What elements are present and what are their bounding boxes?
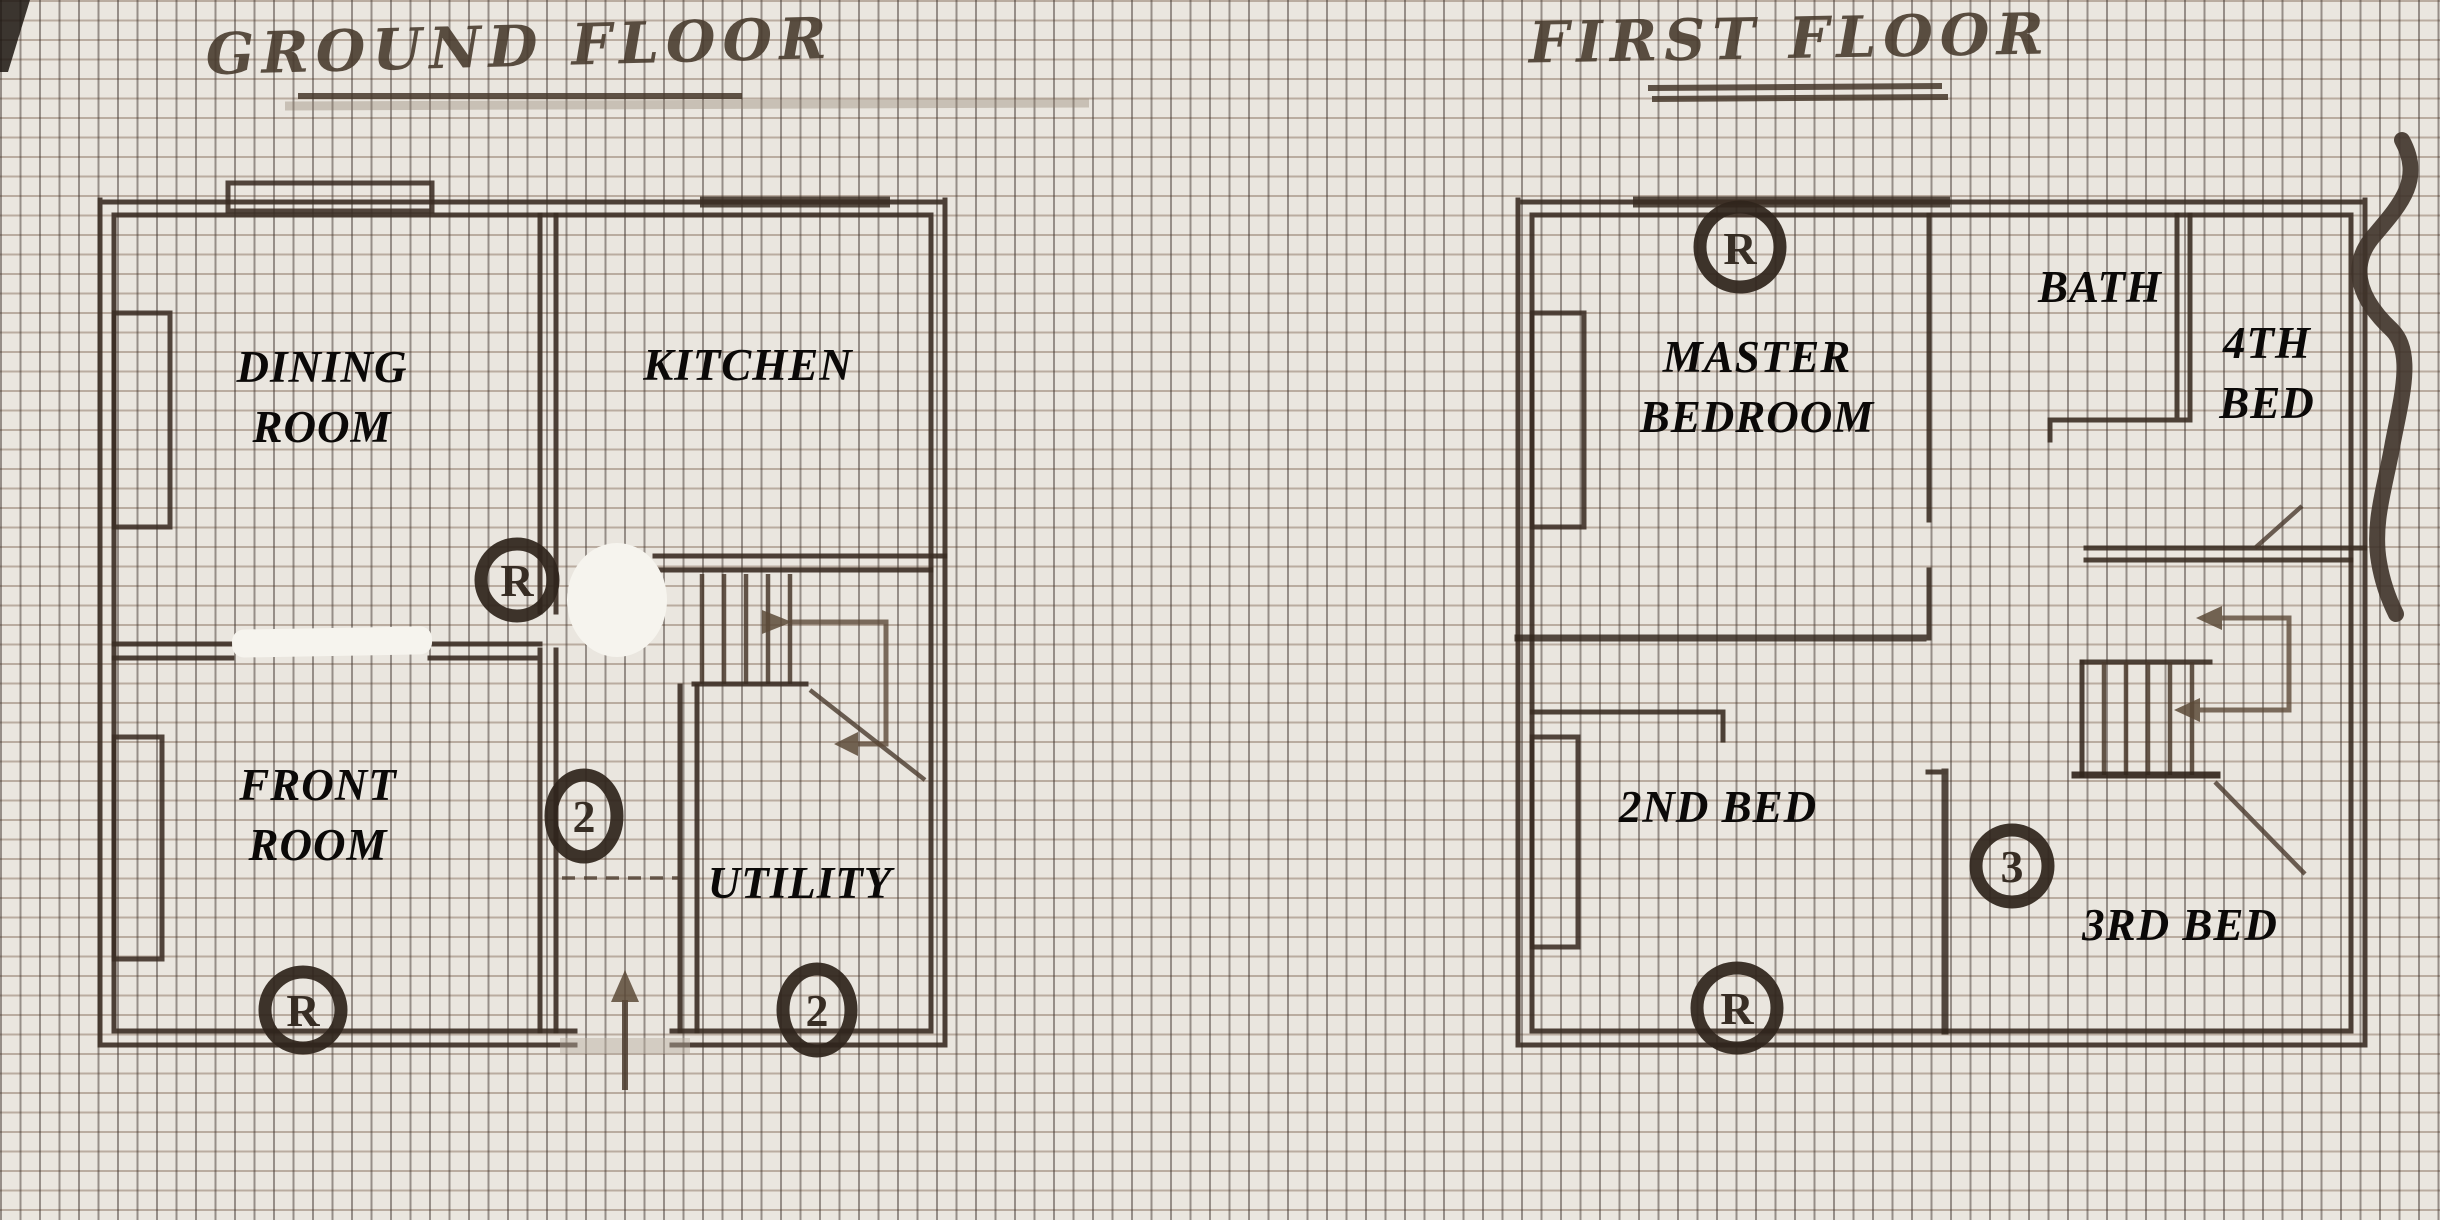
ground-floor-staircase — [694, 574, 925, 780]
dining-top-window — [228, 183, 432, 211]
master-bedroom-label-line1: MASTER — [1662, 332, 1852, 382]
marker-letter: R — [1723, 223, 1757, 274]
marker-circle-3rd-bed: 3 — [1976, 830, 2048, 902]
marker-letter: 2 — [806, 985, 829, 1036]
correction-fluid-smear — [232, 626, 432, 657]
dining-left-window — [114, 313, 170, 527]
ground-floor-plan: R 2 R 2 DINING ROOM KITCHEN FRONT ROOM U… — [100, 5, 1089, 1090]
stair-winder-line — [810, 690, 925, 780]
2nd-bed-label: 2ND BED — [1618, 782, 1817, 832]
graph-paper-sheet: R 2 R 2 DINING ROOM KITCHEN FRONT ROOM U… — [0, 0, 2440, 1220]
front-room-left-window — [114, 737, 162, 959]
marker-letter: 3 — [2001, 841, 2024, 892]
floor-plan-drawing: R 2 R 2 DINING ROOM KITCHEN FRONT ROOM U… — [0, 0, 2440, 1220]
bath-label: BATH — [2037, 262, 2163, 312]
marker-letter: R — [1720, 983, 1754, 1034]
kitchen-label: KITCHEN — [642, 340, 853, 390]
4th-bed-label-line2: BED — [2218, 378, 2315, 428]
front-room-label-line1: FRONT — [238, 760, 397, 810]
marker-circle-utility: 2 — [783, 969, 851, 1051]
utility-label: UTILITY — [708, 858, 895, 908]
scan-corner-blemish — [0, 0, 30, 72]
3rd-bed-label: 3RD BED — [2081, 900, 2278, 950]
stair-up-arrowhead — [762, 610, 792, 634]
master-left-window — [1532, 313, 1584, 527]
stair-lower-arrowhead — [2174, 698, 2200, 722]
marker-circle-front-room: R — [265, 972, 341, 1048]
ground-floor-title: GROUND FLOOR — [205, 5, 835, 88]
2nd-bed-left-window — [1532, 737, 1578, 947]
master-bedroom-label-line2: BEDROOM — [1639, 392, 1876, 442]
first-floor-title-underline-2 — [1652, 97, 1948, 99]
first-floor-title-underline-1 — [1648, 86, 1942, 88]
marker-circle-master-top: R — [1700, 207, 1780, 287]
pencil-smudge — [285, 103, 1089, 106]
marker-circle-2nd-bed-bottom: R — [1697, 968, 1777, 1048]
marker-circle-hall: 2 — [551, 775, 617, 857]
dining-room-label-line1: DINING — [235, 342, 407, 392]
4th-bed-label-line1: 4TH — [2222, 318, 2312, 368]
front-room-label-line2: ROOM — [247, 820, 388, 870]
first-floor-plan: R 3 R MASTER BEDROOM BATH 4TH BED 2ND BE… — [1518, 0, 2411, 1048]
dining-room-label-line2: ROOM — [251, 402, 392, 452]
first-floor-title: FIRST FLOOR — [1526, 0, 2051, 76]
first-floor-staircase — [2075, 606, 2289, 775]
correction-fluid-blob — [567, 543, 667, 657]
stair-direction-path — [2200, 618, 2289, 710]
marker-letter: 2 — [573, 791, 596, 842]
3rd-bed-door-swing — [2215, 782, 2305, 874]
stair-upper-arrowhead — [2196, 606, 2222, 630]
stair-lower-arrowhead — [834, 732, 858, 756]
4th-bed-door-swing — [2255, 506, 2302, 548]
marker-letter: R — [286, 985, 320, 1036]
marker-letter: R — [500, 555, 534, 606]
